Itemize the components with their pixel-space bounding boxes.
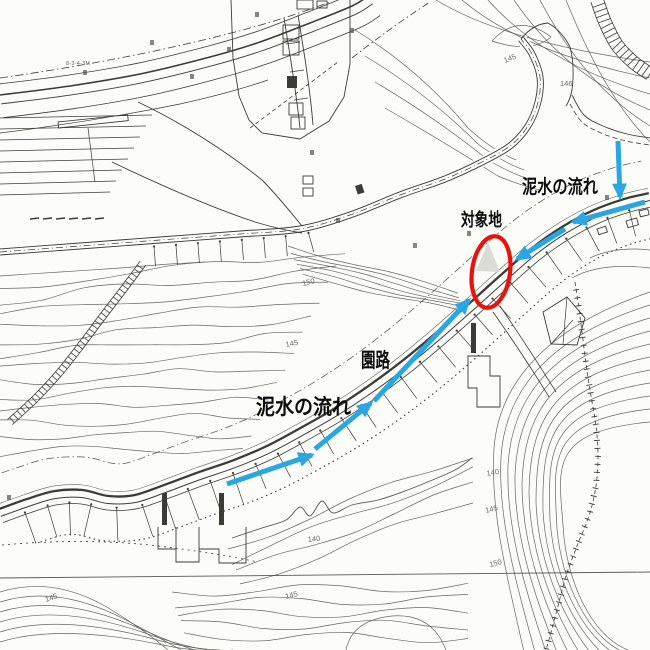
mud-flow-upper-label: 泥水の流れ	[522, 175, 598, 198]
contour-elevation-label: 146	[560, 79, 573, 88]
topographic-map: 1501451451461401451401451501458-3-4-3M 泥…	[0, 0, 650, 650]
target-site-label: 対象地	[460, 209, 502, 230]
mud-flow-arrow	[618, 141, 620, 197]
site-map: 1501451451461401451401451501458-3-4-3M 泥…	[0, 0, 650, 650]
map-paper	[0, 0, 650, 650]
contour-elevation-label: 140	[307, 534, 320, 544]
mud-flow-lower-label: 泥水の流れ	[256, 395, 351, 419]
survey-point-label: 8-3-4-3M	[66, 61, 90, 67]
park-path-label: 園路	[361, 348, 391, 372]
